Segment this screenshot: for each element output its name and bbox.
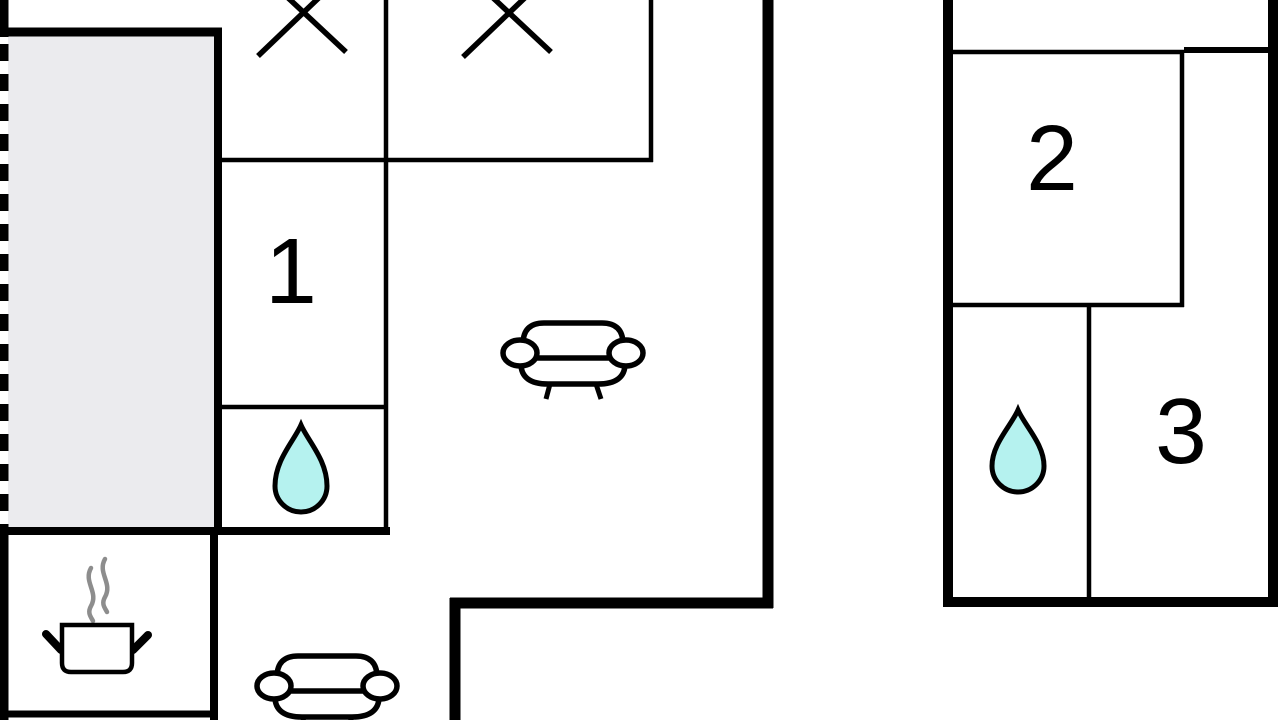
room-1-label: 1 <box>265 219 317 323</box>
steam-icon <box>89 559 108 621</box>
room-3-label: 3 <box>1155 379 1207 483</box>
terrace-area <box>8 36 214 527</box>
water-drop-icon <box>992 410 1044 492</box>
sofa-icon <box>503 323 643 399</box>
water-drop-icon <box>275 425 327 512</box>
x-marker-icon <box>459 0 555 57</box>
x-marker-icon <box>254 0 350 56</box>
floor-plan-drawing: 1 2 3 <box>0 0 1280 720</box>
exterior-walls-right-building <box>943 0 1278 602</box>
interior-walls-right-building <box>953 50 1270 600</box>
sofa-icon <box>257 656 397 720</box>
cooking-pot-icon <box>46 625 148 672</box>
floor-plan: 1 2 3 <box>0 0 1280 720</box>
room-2-label: 2 <box>1026 106 1078 210</box>
